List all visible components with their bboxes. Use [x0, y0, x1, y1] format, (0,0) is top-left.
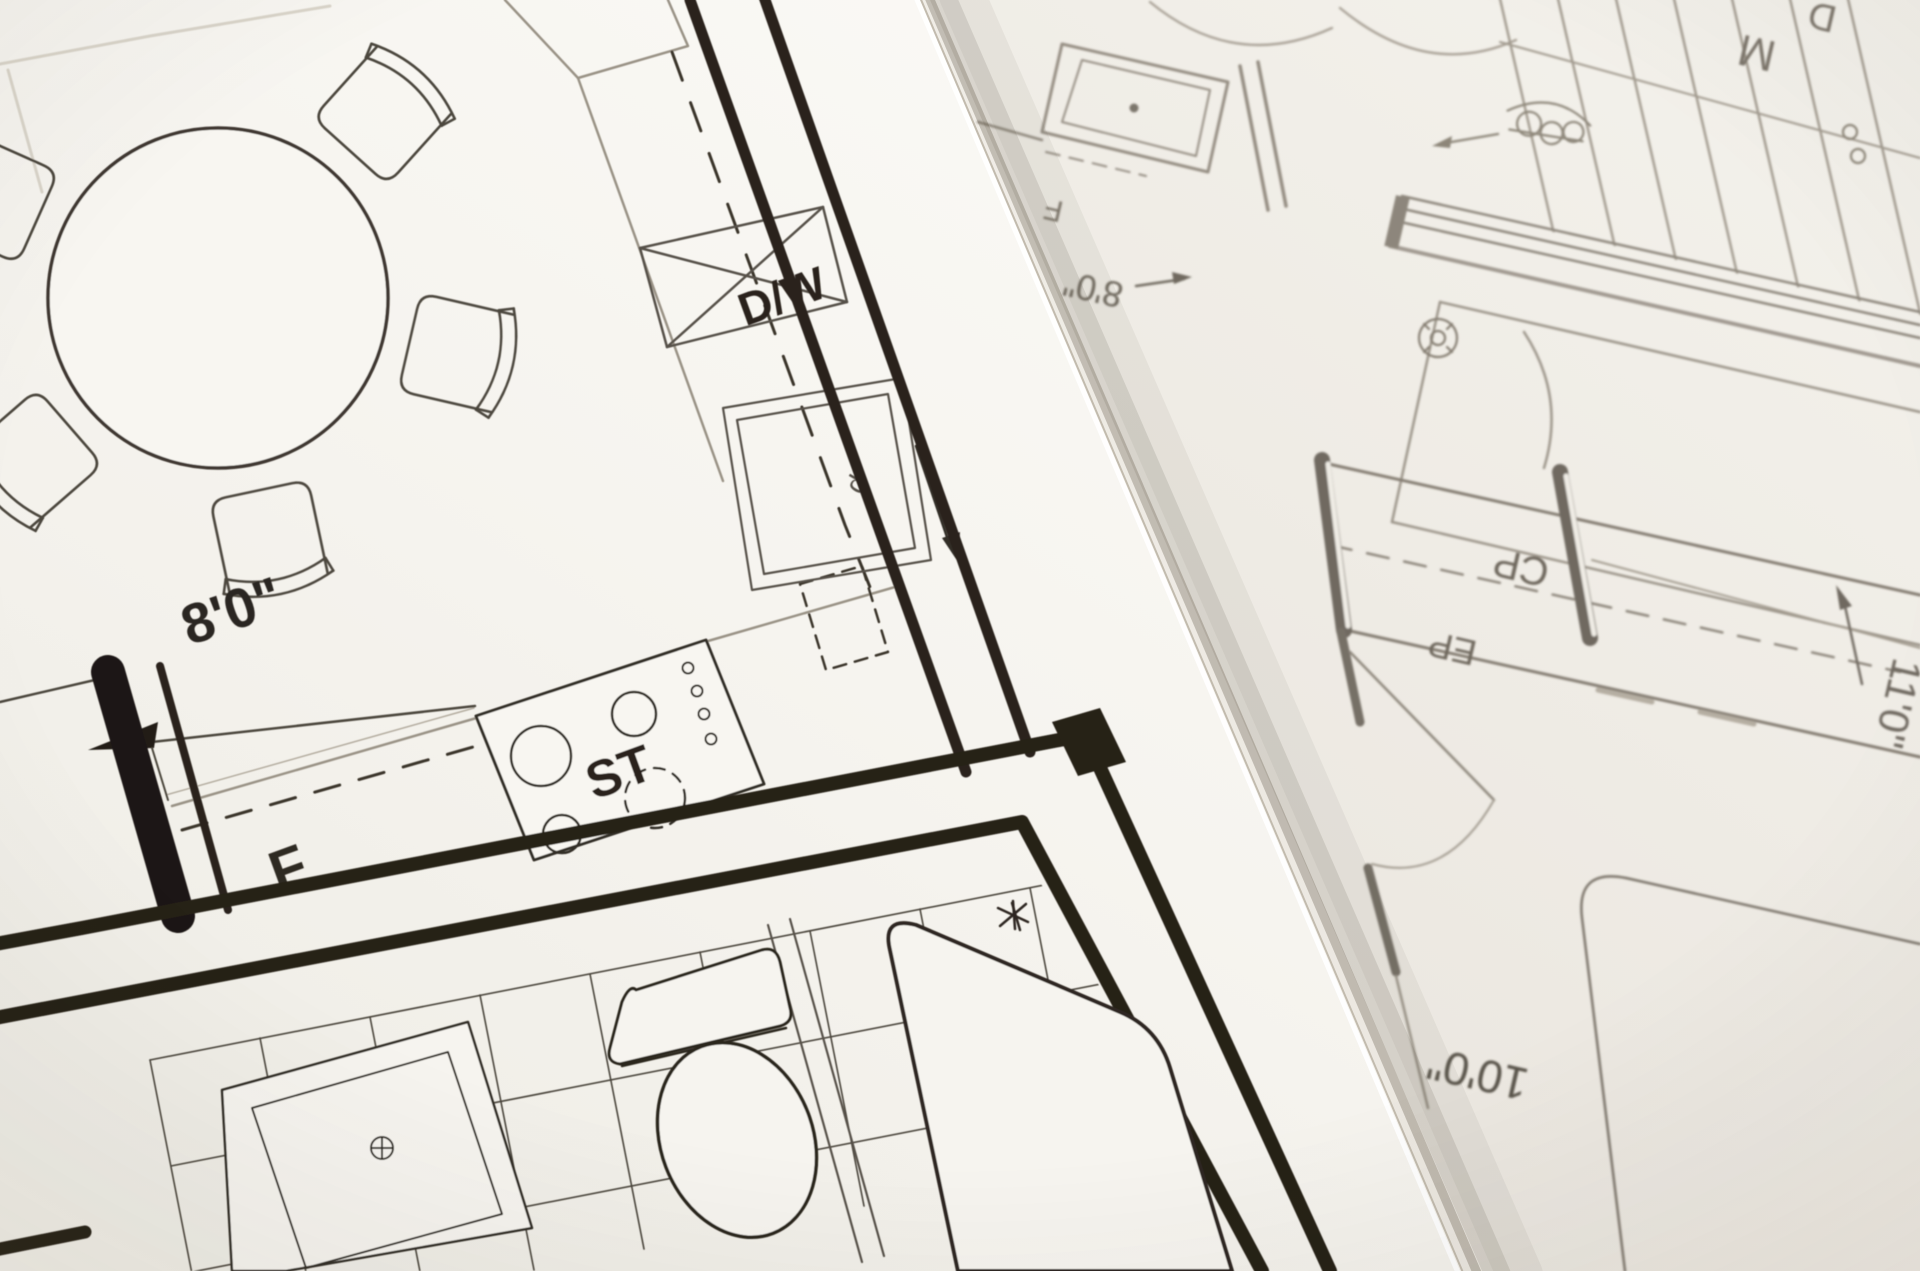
photo-vignette	[0, 0, 1920, 1271]
blueprint-scene: 11'0" M D CP EP F 8'0" 10'0"	[0, 0, 1920, 1271]
blueprint-photo: 11'0" M D CP EP F 8'0" 10'0"	[0, 0, 1920, 1271]
